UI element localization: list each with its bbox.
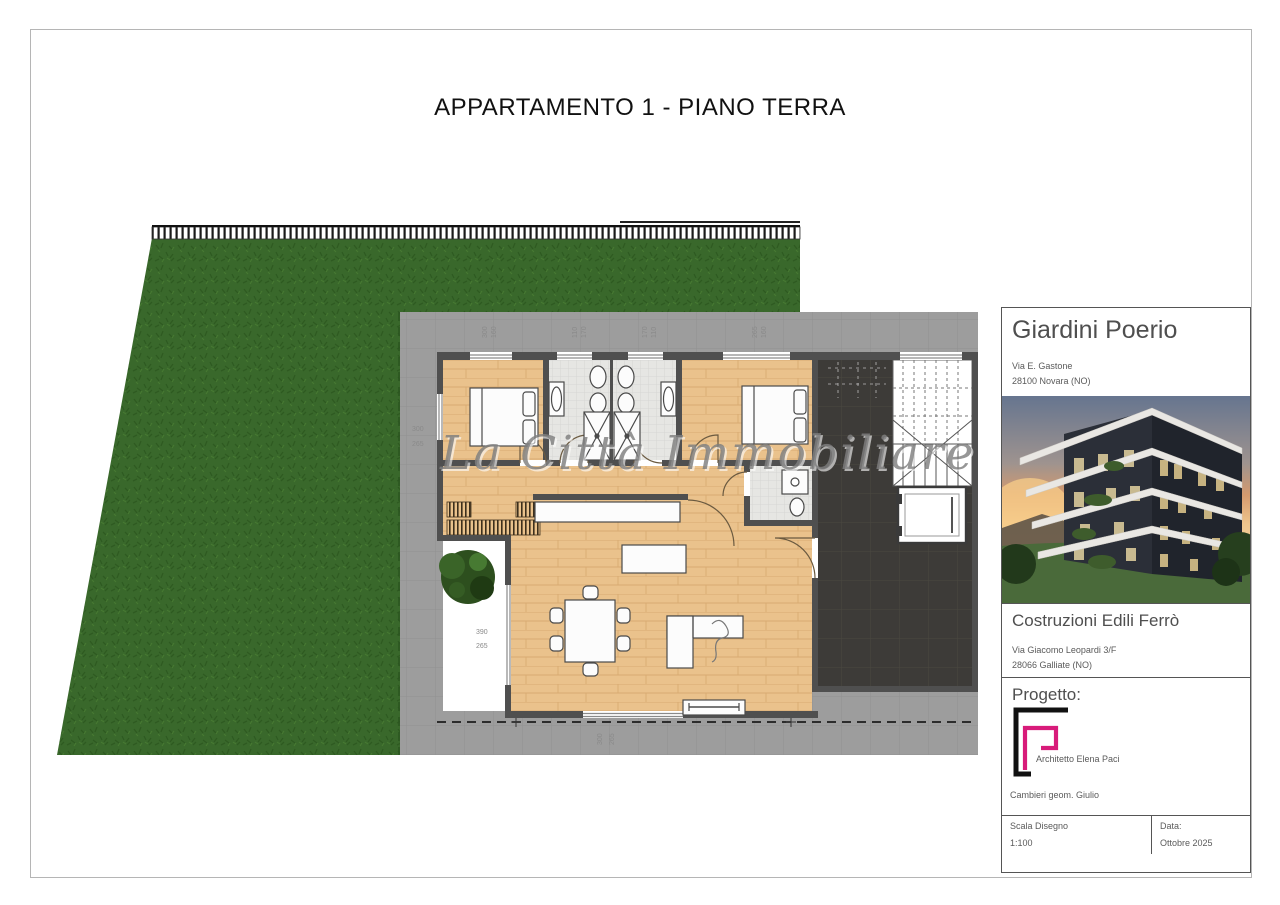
svg-text:300: 300: [482, 326, 489, 338]
svg-text:300: 300: [412, 426, 424, 433]
project-address-line2: 28100 Novara (NO): [1012, 374, 1240, 389]
elevator: [896, 487, 966, 543]
svg-text:160: 160: [761, 326, 768, 338]
svg-text:110: 110: [651, 327, 658, 338]
builder-address-line2: 28066 Galliate (NO): [1012, 658, 1240, 673]
date-value: Ottobre 2025: [1160, 838, 1242, 848]
svg-text:265: 265: [609, 733, 616, 745]
scale-value: 1:100: [1010, 838, 1143, 848]
architect-logo: [1010, 706, 1072, 778]
stairwell-landing: [818, 358, 972, 686]
surveyor-name: Cambieri geom. Giulio: [1010, 790, 1099, 800]
project-name: Giardini Poerio: [1012, 316, 1240, 345]
builder-name: Costruzioni Edili Ferrò: [1012, 611, 1240, 631]
architect-name: Architetto Elena Paci: [1036, 754, 1120, 764]
scale-cell: Scala Disegno 1:100: [1002, 816, 1152, 854]
scale-date-row: Scala Disegno 1:100 Data: Ottobre 2025: [1002, 815, 1250, 854]
svg-text:265: 265: [476, 643, 488, 650]
garden-fence: [152, 222, 800, 239]
svg-text:La Città Immobiliare: La Città Immobiliare: [439, 426, 975, 481]
watermark: La Città Immobiliare La Città Immobiliar…: [439, 426, 977, 483]
svg-text:110: 110: [572, 327, 579, 338]
radiator: [683, 700, 745, 715]
svg-text:170: 170: [642, 326, 649, 338]
svg-text:265: 265: [412, 441, 424, 448]
project-address-line1: Via E. Gastone: [1012, 359, 1240, 374]
drawing-sheet: APPARTAMENTO 1 - PIANO TERRA: [0, 0, 1280, 905]
scale-label: Scala Disegno: [1010, 821, 1143, 831]
svg-text:170: 170: [581, 326, 588, 338]
svg-text:300: 300: [597, 733, 604, 745]
builder-section: Costruzioni Edili Ferrò Via Giacomo Leop…: [1002, 604, 1250, 677]
svg-text:390: 390: [476, 629, 488, 636]
designer-section: Progetto: Architetto Elena Paci Cambieri…: [1002, 678, 1250, 815]
building-render: [1002, 396, 1250, 603]
progetto-label: Progetto:: [1012, 685, 1240, 705]
svg-text:265: 265: [752, 326, 759, 338]
svg-text:160: 160: [491, 326, 498, 338]
title-block: Giardini Poerio Via E. Gastone 28100 Nov…: [1001, 307, 1251, 873]
project-section: Giardini Poerio Via E. Gastone 28100 Nov…: [1002, 308, 1250, 396]
date-cell: Data: Ottobre 2025: [1152, 816, 1250, 854]
builder-address-line1: Via Giacomo Leopardi 3/F: [1012, 643, 1240, 658]
date-label: Data:: [1160, 821, 1242, 831]
